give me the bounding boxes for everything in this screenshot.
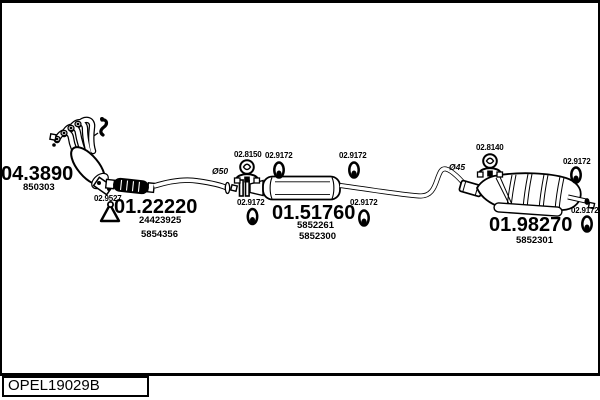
oe-number-front-pipe-2: 5854356	[141, 230, 178, 240]
hanger-ring-code-1: 02.9172	[265, 152, 293, 160]
oe-number-front-pipe-1: 24423925	[139, 216, 181, 226]
title-block: OPEL19029B	[2, 376, 149, 397]
drawing-code: OPEL19029B	[8, 377, 100, 394]
flex-pipe-section	[105, 176, 154, 195]
hanger-ring-icon-6	[582, 217, 591, 232]
hanger-ring-icon-5	[571, 168, 580, 183]
hanger-ring-code-5: 02.9172	[563, 158, 591, 166]
connecting-pipe-part	[340, 169, 483, 197]
part-code-rear-muffler: 01.98270	[489, 215, 572, 236]
rear-clamp-icon	[478, 154, 503, 177]
hanger-ring-icon-1	[274, 163, 283, 178]
tailpipe-tip	[585, 198, 590, 205]
hook-bracket-part	[100, 117, 106, 135]
hanger-ring-icon-3	[248, 209, 257, 224]
oe-number-center-muffler-1: 5852261	[297, 221, 334, 231]
front-pipe-part	[154, 180, 230, 193]
hanger-ring-code-3: 02.9172	[237, 199, 265, 207]
hanger-ring-code-6: 02.9172	[571, 207, 599, 215]
hanger-ring-icon-4	[359, 211, 368, 226]
oe-number-manifold: 850303	[23, 183, 55, 193]
oe-number-rear-muffler: 5852301	[516, 236, 553, 246]
exhaust-system-diagram: 04.3890 850303 02.9527 01.22220 24423925…	[0, 0, 600, 400]
rear-clamp-code: 02.8140	[476, 144, 504, 152]
rear-pipe-diameter-label: Ø45	[449, 163, 465, 172]
front-clamp-code: 02.8150	[234, 151, 262, 159]
front-clamp-icon	[235, 160, 260, 183]
hanger-ring-code-2: 02.9172	[339, 152, 367, 160]
hanger-ring-icon-2	[349, 163, 358, 178]
exhaust-drawing	[0, 0, 600, 376]
front-pipe-diameter-label: Ø50	[212, 167, 228, 176]
oe-number-center-muffler-2: 5852300	[299, 232, 336, 242]
